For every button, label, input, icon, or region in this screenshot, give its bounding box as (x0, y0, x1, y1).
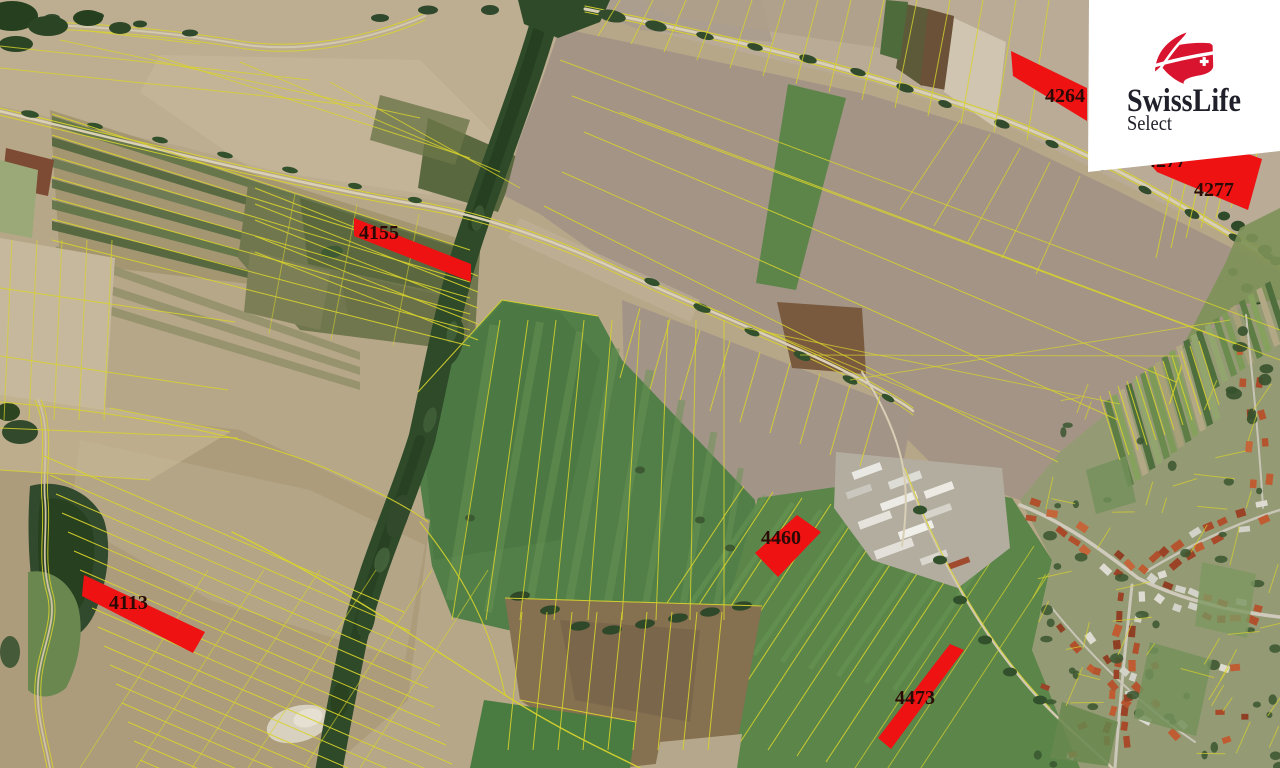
svg-text:4264: 4264 (1045, 85, 1085, 107)
svg-text:Select: Select (1127, 111, 1172, 135)
svg-text:4113: 4113 (109, 592, 148, 614)
svg-text:4277: 4277 (1194, 179, 1234, 201)
svg-text:4460: 4460 (761, 527, 801, 549)
svg-text:4473: 4473 (895, 687, 935, 709)
svg-text:4155: 4155 (359, 222, 399, 244)
